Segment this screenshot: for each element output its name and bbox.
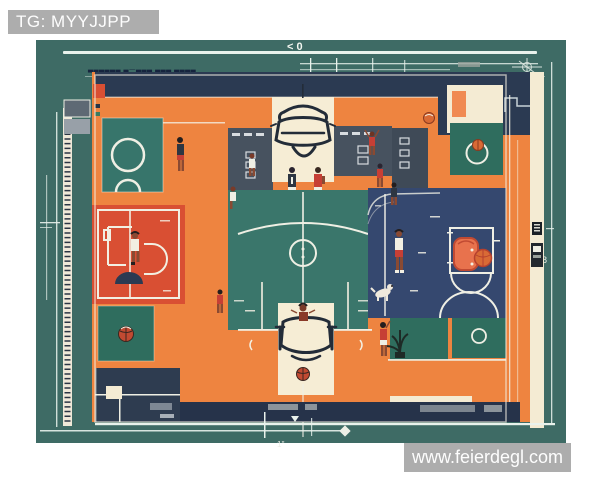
bottom-left-structure [95,368,180,422]
scoreboard-panel-far-right [392,128,428,192]
green-square-plant [386,318,448,360]
green-square-basketball-left [98,306,154,361]
green-square-basketball-right [450,123,503,175]
blueprint-note: ▃▃▃▃▃▃ ▃—▃▃▃ ▃▃▃ ▃▃▃▃ [87,65,197,73]
plant-pot [395,352,405,358]
green-square-circles [102,118,163,192]
cream-block-accent [452,91,466,117]
green-square-small-circle [452,318,506,358]
bottom-measure-label: 1'' [277,440,285,449]
bottom-court-line [388,359,506,361]
watermark-tag: TG: MYYJJPP [8,10,159,34]
court-illustration: < 0 ▃▃▃▃▃▃ ▃—▃▃▃ ▃▃▃ ▃▃▃▃ 8 [0,0,600,480]
hoop-top-illustration [271,84,335,182]
court-top-line [105,97,438,99]
scoreboard-panel-right [334,126,392,176]
top-scale-label: < 0 [287,41,303,53]
watermark-site: www.feierdegl.com [404,443,571,472]
screenshot-stage: < 0 ▃▃▃▃▃▃ ▃—▃▃▃ ▃▃▃ ▃▃▃▃ 8 [0,0,600,480]
